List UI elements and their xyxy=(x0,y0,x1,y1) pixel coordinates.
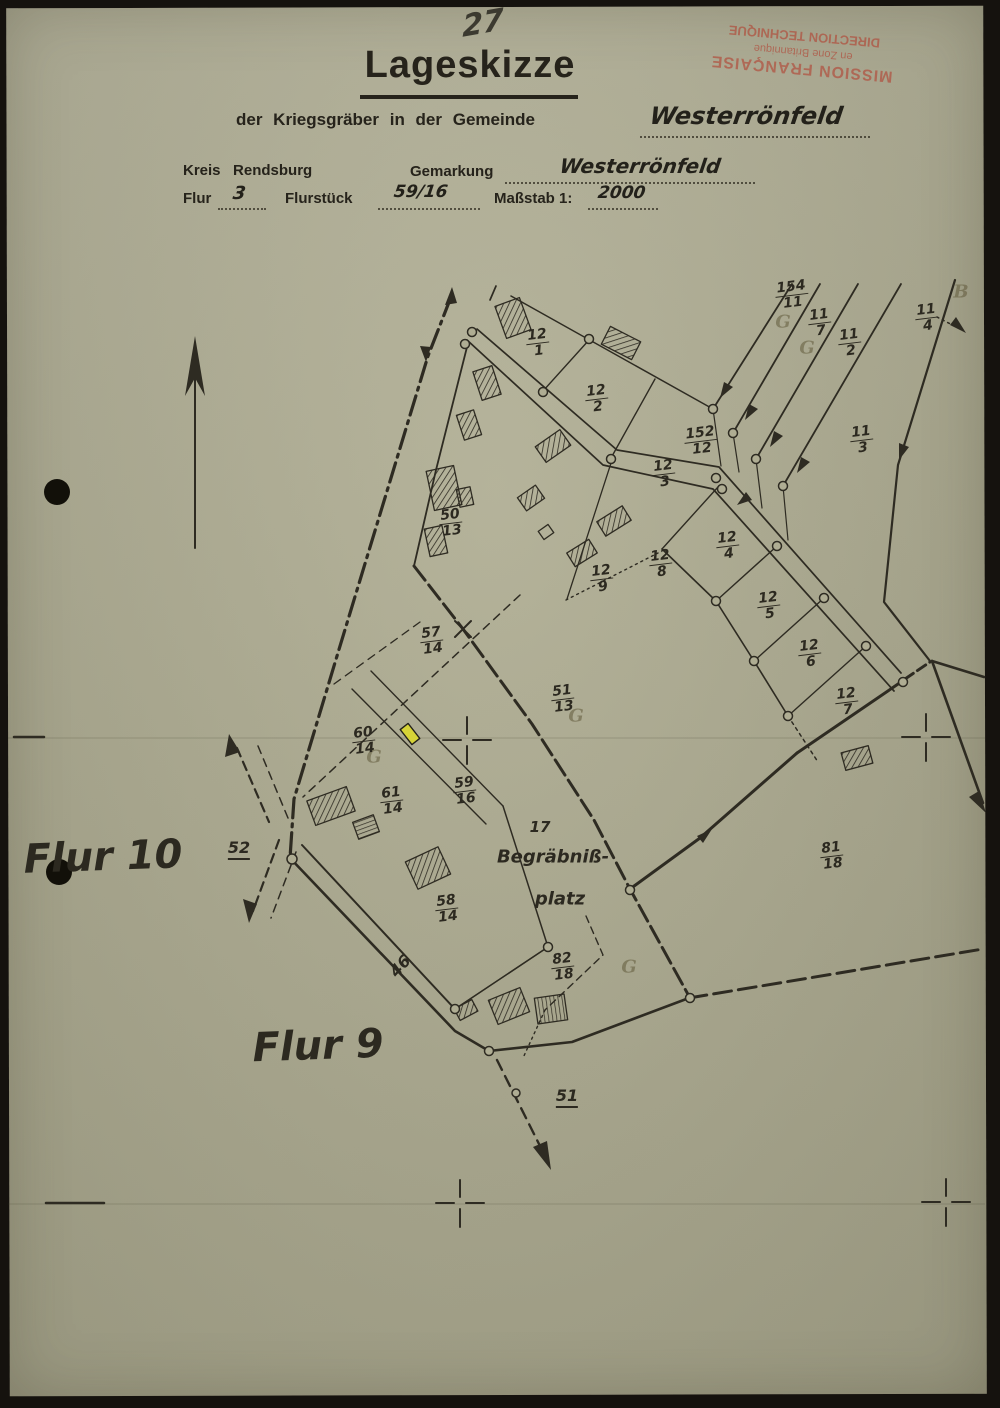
flur-label: Flur xyxy=(183,190,211,207)
flurstueck-label: Flurstück xyxy=(285,190,353,207)
site-sketch-map xyxy=(0,0,1000,1408)
document-subtitle: der Kriegsgräber in der Gemeinde xyxy=(236,110,535,130)
building-footprints xyxy=(307,298,873,1025)
gemarkung-value: Westerrönfeld xyxy=(558,154,722,178)
flurstueck-value: 59/16 xyxy=(393,182,449,202)
handwritten-page-number: 27 xyxy=(462,2,503,45)
north-arrow xyxy=(185,336,205,548)
document-title: Lageskizze xyxy=(352,44,588,87)
gemeinde-underline xyxy=(640,135,870,138)
gemarkung-label: Gemarkung xyxy=(410,163,493,180)
kreis-label: Kreis xyxy=(183,162,221,179)
flurstueck-underline xyxy=(378,207,480,210)
massstab-underline xyxy=(588,207,658,210)
kreis-value: Rendsburg xyxy=(233,162,312,179)
massstab-label: Maßstab 1: xyxy=(494,190,572,207)
boundary-markers xyxy=(287,328,908,1098)
scanned-document-page: 27 MISSION FRANÇAISE en Zone Britannique… xyxy=(0,0,1000,1408)
flur-underline xyxy=(218,207,266,210)
massstab-value: 2000 xyxy=(597,183,647,203)
gemeinde-value: Westerrönfeld xyxy=(648,102,845,130)
kreis-field: Kreis Rendsburg xyxy=(183,162,312,179)
title-underline xyxy=(360,95,578,99)
survey-cross xyxy=(436,714,970,1227)
